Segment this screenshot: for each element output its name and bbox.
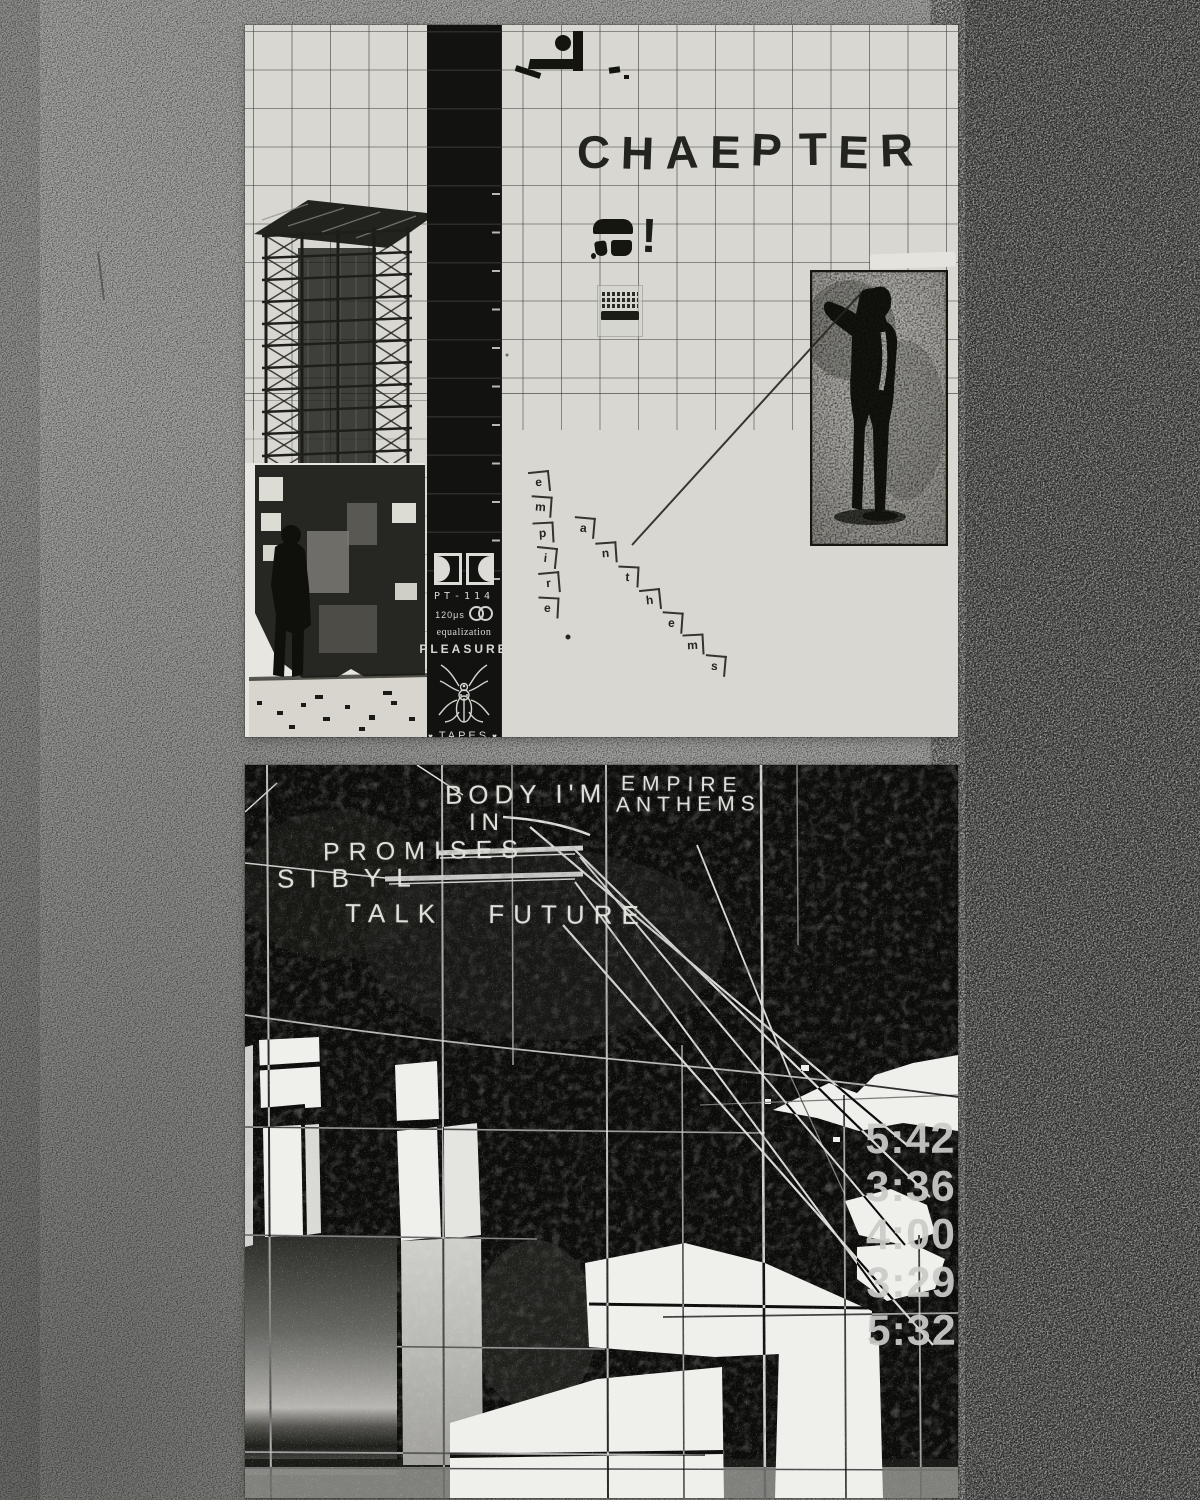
eq-time-constant: 120μs (435, 610, 465, 620)
letter-tile: r (538, 571, 561, 594)
spine-strip: PT-114 120μs equalization PLEASURE (427, 25, 502, 737)
track-duration: 3:36 (829, 1163, 955, 1212)
title-letter: H (620, 129, 655, 176)
track-duration: 5:42 (829, 1115, 955, 1164)
torn-paper-patch (870, 252, 956, 270)
eq-label: equalization (437, 627, 492, 638)
cassette-front-cover: PT-114 120μs equalization PLEASURE (245, 25, 958, 737)
interlocked-circles-icon (469, 606, 493, 623)
track-title: SIBYL (277, 862, 426, 894)
construction-tower-photo (248, 190, 440, 482)
label-name: PLEASURE (419, 642, 508, 656)
title-letter: R (879, 126, 914, 173)
heart-icon-left: ♥ (428, 732, 436, 738)
letter-tile: n (595, 541, 617, 563)
exclamation-mark: ! (640, 209, 658, 265)
letter-tile: s (704, 654, 727, 677)
catalog-number: PT-114 (434, 591, 494, 602)
ink-blot (517, 27, 637, 89)
track-title: ANTHEMS (616, 792, 761, 817)
cassette-stamp-icon (593, 219, 635, 261)
letter-tile: e (661, 611, 683, 633)
figure-photo (810, 270, 948, 546)
durations-column: 5:42 3:36 4:00 3:29 5:32 (829, 1115, 957, 1356)
ruins-photo (245, 463, 425, 737)
track-duration: 3:29 (830, 1259, 956, 1308)
title-letter: P (750, 126, 783, 174)
letter-tile: e (537, 596, 559, 618)
letter-tile: m (530, 495, 552, 517)
letter-tile: a (573, 516, 596, 539)
letter-tile: m (682, 633, 704, 655)
cassette-back-cover: BODY I'M IN EMPIRE ANTHEMS PROMISES SIBY… (245, 765, 958, 1498)
tapes-label: TAPES (439, 730, 489, 737)
letter-tile: i (535, 546, 558, 569)
spine-grid-lines (427, 25, 501, 577)
title-letter: C (577, 129, 611, 176)
artwork-page: { "front_cover": { "title_letters": ["C"… (0, 0, 1200, 1500)
title-letter: T (799, 126, 828, 172)
track-title: TALK FUTURE (345, 898, 648, 931)
title-letter: E (837, 128, 869, 175)
letter-tile: e (528, 470, 551, 493)
track-title: BODY I'M (445, 778, 608, 811)
spine-edge-dashes (492, 193, 500, 593)
title-letter: E (709, 129, 740, 176)
track-duration: 5:32 (831, 1307, 957, 1356)
heart-icon-right: ♥ (492, 732, 500, 738)
track-title: IN (469, 809, 505, 837)
beetle-icon (437, 662, 491, 724)
title-letter: A (665, 128, 700, 175)
letter-tile: t (617, 565, 639, 587)
track-duration: 4:00 (830, 1211, 956, 1260)
dolby-double-d-icon (434, 553, 494, 585)
fine-print-stamp (597, 285, 643, 337)
letter-tile: p (532, 521, 554, 543)
letter-tile: h (639, 588, 662, 611)
album-title: C H A E P T E R (577, 129, 924, 175)
